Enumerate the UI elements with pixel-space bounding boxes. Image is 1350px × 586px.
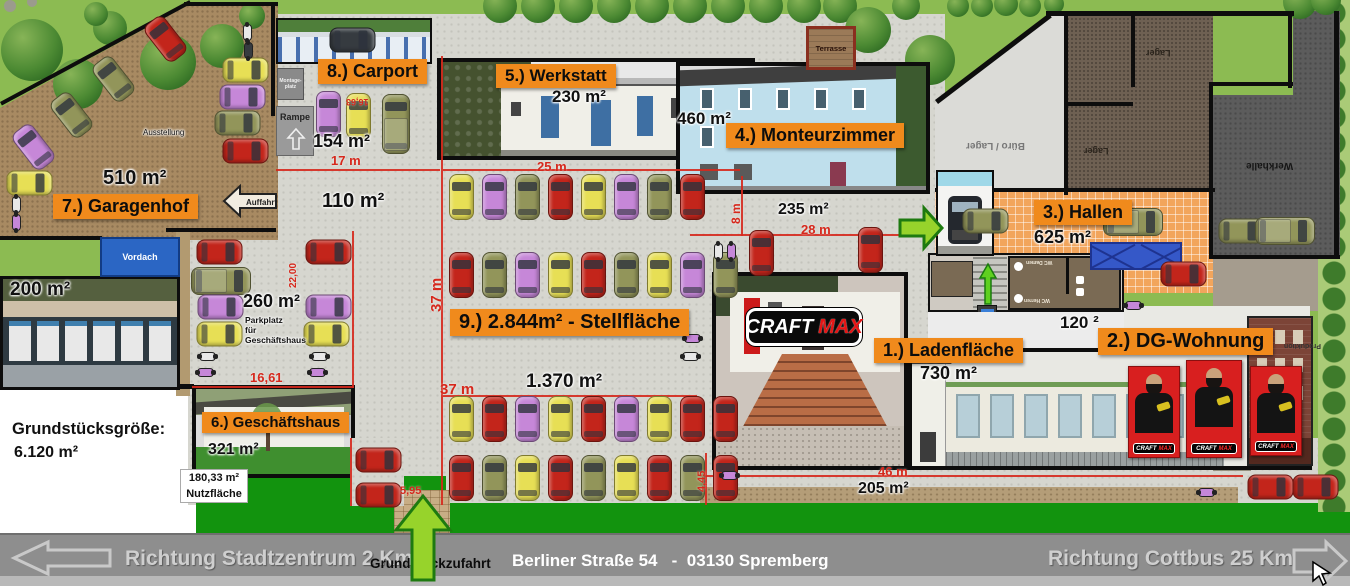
room-buero-lager	[935, 13, 1070, 193]
street-address: Berliner Straße 54 - 03130 Spremberg	[512, 551, 829, 571]
terrasse-label: Terrasse	[816, 44, 847, 53]
motorcycle	[682, 352, 699, 361]
montageplatz: Montage-platz	[277, 68, 304, 100]
ausstellung-label: Ausstellung	[143, 128, 184, 137]
rock	[27, 0, 37, 7]
wc-wall	[1066, 256, 1069, 294]
motorcycle	[12, 196, 21, 213]
sink-icon	[1076, 276, 1084, 284]
vehicle-car	[1160, 262, 1206, 287]
area-120: 120 ²	[1060, 313, 1099, 333]
vehicle-car	[647, 396, 672, 442]
auffahrt-arrow: Auffahrt	[222, 184, 278, 218]
area-205: 205 m²	[858, 480, 909, 498]
vehicle-truck	[191, 267, 251, 295]
dimension-line	[276, 169, 440, 171]
wc-damen-label: WC Damen	[1026, 259, 1052, 265]
produktion-label: Produktion	[1284, 342, 1321, 349]
motorcycle	[244, 42, 253, 59]
vehicle-car	[614, 396, 639, 442]
vehicle-car	[548, 174, 573, 220]
road-shoulder	[0, 576, 1350, 586]
vehicle-car	[222, 139, 268, 164]
area-110: 110 m²	[322, 190, 384, 213]
tree	[1019, 0, 1041, 17]
vehicle-car	[647, 174, 672, 220]
toilet-icon	[1014, 262, 1023, 271]
badge-stellflaeche: 9.) 2.844m² - Stellfläche	[450, 309, 689, 336]
badge-dg-wohnung: 2.) DG-Wohnung	[1098, 328, 1273, 355]
hallen-entry-arrow	[900, 208, 942, 248]
craftmax-poster: CRAFTMAX	[1128, 366, 1180, 458]
buero-lager-label: Büro / Lager	[966, 140, 1025, 151]
terrasse: Terrasse	[806, 26, 856, 70]
motorcycle	[197, 368, 214, 377]
vehicle-car	[6, 171, 52, 196]
area-730: 730 m²	[920, 363, 977, 384]
plot-size-value: 6.120 m²	[14, 444, 78, 462]
plot-size-label: Grundstücksgröße:	[12, 420, 165, 439]
vehicle-car	[449, 252, 474, 298]
tree	[84, 2, 108, 26]
wall	[271, 2, 275, 116]
motorcycle	[714, 243, 723, 260]
wall	[1209, 84, 1213, 259]
nutzflaeche-note: 180,33 m²Nutzfläche	[180, 469, 248, 503]
badge-garagenhof: 7.) Garagenhof	[53, 194, 198, 219]
vehicle-car	[749, 230, 774, 276]
vehicle-car	[962, 209, 1008, 234]
photo-ladenflaeche-west	[712, 272, 908, 470]
area-235: 235 m²	[778, 201, 829, 219]
area-1370: 1.370 m²	[526, 371, 602, 393]
area-510: 510 m²	[103, 167, 166, 190]
vehicle-car	[305, 240, 351, 265]
vehicle-car	[355, 483, 401, 508]
badge-geschaeftshaus: 6.) Geschäftshaus	[202, 412, 349, 433]
tree	[994, 0, 1018, 16]
badge-carport: 8.) Carport	[318, 59, 427, 84]
motorcycle	[243, 24, 252, 41]
dim-37m-h: 37 m	[440, 381, 474, 398]
wc-herren-label: WC Herren	[1024, 297, 1050, 303]
vehicle-car	[581, 396, 606, 442]
max-text: MAX	[818, 316, 862, 339]
vehicle-car	[449, 455, 474, 501]
vehicle-car	[614, 174, 639, 220]
vehicle-car	[548, 455, 573, 501]
vehicle-car	[329, 28, 375, 53]
badge-ladenflaeche: 1.) Ladenfläche	[874, 338, 1023, 363]
wall	[0, 236, 102, 240]
vehicle-car	[1292, 475, 1338, 500]
vehicle-car	[713, 396, 738, 442]
vehicle-car	[196, 240, 242, 265]
dimension-line	[350, 438, 352, 506]
vehicle-car	[214, 111, 260, 136]
area-460: 460 m²	[677, 109, 731, 129]
wall	[166, 228, 276, 232]
vordach-label: Vordach	[122, 252, 157, 262]
vehicle-car	[647, 252, 672, 298]
vehicle-car	[355, 448, 401, 473]
badge-hallen: 3.) Hallen	[1034, 200, 1132, 225]
dim-25m: 25 m	[537, 159, 567, 174]
wall	[1334, 11, 1339, 259]
dim-8m: 8 m	[729, 203, 743, 224]
area-321: 321 m²	[208, 441, 259, 459]
tree	[947, 0, 969, 17]
parkplatz-sub-1: Parkplatz	[245, 315, 283, 325]
vehicle-car	[449, 174, 474, 220]
lawn-strip-south	[440, 503, 1350, 533]
dimension-line	[192, 386, 354, 388]
motorcycle	[311, 352, 328, 361]
vehicle-car	[680, 174, 705, 220]
vehicle-car	[647, 455, 672, 501]
poster-logo: CRAFTMAX	[1255, 441, 1297, 452]
vehicle-car	[515, 396, 540, 442]
dim-445: 4,45	[696, 471, 708, 492]
vordach-canopy: Vordach	[100, 237, 180, 277]
vehicle-car	[515, 174, 540, 220]
vehicle-car	[482, 174, 507, 220]
dim-28m: 28 m	[801, 222, 831, 237]
area-230: 230 m²	[552, 87, 606, 107]
motorcycle	[1198, 488, 1215, 497]
poster-logo: CRAFTMAX	[1191, 443, 1237, 454]
vehicle-car	[482, 396, 507, 442]
vehicle-car	[515, 455, 540, 501]
motorcycle	[721, 471, 738, 480]
wall	[1066, 102, 1133, 106]
wall	[1046, 11, 1294, 16]
badge-monteurzimmer: 4.) Monteurzimmer	[726, 123, 904, 148]
site-plan: WC Damen WC Herren	[0, 0, 1350, 586]
vehicle-car	[222, 58, 268, 83]
ramp-arrow-icon	[288, 129, 304, 149]
arrow-left-icon	[12, 540, 112, 576]
wall	[1131, 13, 1135, 87]
craftmax-poster: CRAFTMAX	[1186, 360, 1242, 458]
vehicle-car	[482, 252, 507, 298]
vehicle-car	[219, 85, 265, 110]
craftmax-logo: CRAFTMAX	[746, 308, 862, 346]
toilet-icon	[1014, 294, 1023, 303]
rampe-label: Rampe	[277, 112, 313, 122]
vehicle-car	[614, 455, 639, 501]
vehicle-car	[197, 295, 243, 320]
dimension-line	[443, 169, 740, 171]
craftmax-poster: CRAFTMAX	[1250, 366, 1302, 456]
dim-46m: 46 m	[878, 464, 908, 479]
auffahrt-label: Auffahrt	[246, 198, 277, 207]
vehicle-car	[581, 455, 606, 501]
dimension-line	[703, 475, 1243, 477]
parkplatz-sub-2: für	[245, 325, 256, 335]
vehicle-car	[305, 295, 351, 320]
vehicle-car	[680, 252, 705, 298]
area-625: 625 m²	[1034, 227, 1091, 248]
vehicle-car	[680, 396, 705, 442]
vehicle-car	[581, 174, 606, 220]
vehicle-car	[1247, 475, 1293, 500]
wall	[1209, 82, 1293, 86]
motorcycle	[12, 214, 21, 231]
wall	[1213, 255, 1340, 259]
dim-1663: 16,63	[346, 97, 369, 107]
lager-label-1: Lager	[1146, 48, 1171, 58]
mouse-cursor	[1310, 560, 1334, 586]
motorcycle	[727, 243, 736, 260]
vehicle-car	[196, 322, 242, 347]
dim-37m-v: 37 m	[428, 278, 445, 312]
rock	[4, 0, 16, 12]
vehicle-truck	[382, 94, 410, 154]
area-260: 260 m²	[243, 291, 300, 312]
vehicle-car	[482, 455, 507, 501]
dim-2200: 22,00	[288, 263, 299, 288]
motorcycle	[1125, 301, 1142, 310]
badge-werkstatt: 5.) Werkstatt	[496, 64, 616, 88]
lager-label-2: Lager	[1084, 146, 1109, 156]
craft-text: CRAFT	[745, 316, 813, 339]
entrance-arrow	[396, 496, 450, 580]
vehicle-car	[303, 322, 349, 347]
motorcycle	[199, 352, 216, 361]
stairs-up-arrow	[980, 264, 996, 304]
motorcycle	[309, 368, 326, 377]
direction-right: Richtung Cottbus 25 Km	[1048, 547, 1293, 571]
poster-logo: CRAFTMAX	[1133, 443, 1175, 454]
vehicle-car	[548, 396, 573, 442]
vehicle-car	[515, 252, 540, 298]
parkplatz-sub-3: Geschäftshaus	[245, 335, 306, 345]
sink-icon	[1076, 288, 1084, 296]
area-154: 154 m²	[313, 131, 370, 152]
rampe: Rampe	[276, 106, 314, 156]
werkhalle-label: Werkhalle	[1246, 160, 1293, 171]
vehicle-car	[449, 396, 474, 442]
vehicle-car	[548, 252, 573, 298]
vehicle-car	[581, 252, 606, 298]
vehicle-truck	[1255, 217, 1315, 245]
vehicle-car	[614, 252, 639, 298]
room-small	[931, 261, 973, 297]
dim-1661: 16,61	[250, 370, 283, 385]
vehicle-car	[858, 227, 883, 273]
dim-17m: 17 m	[331, 153, 361, 168]
dimension-line	[352, 231, 354, 388]
wall	[184, 2, 278, 6]
tree	[971, 0, 993, 17]
wall	[1288, 11, 1292, 88]
area-200: 200 m²	[10, 279, 70, 301]
